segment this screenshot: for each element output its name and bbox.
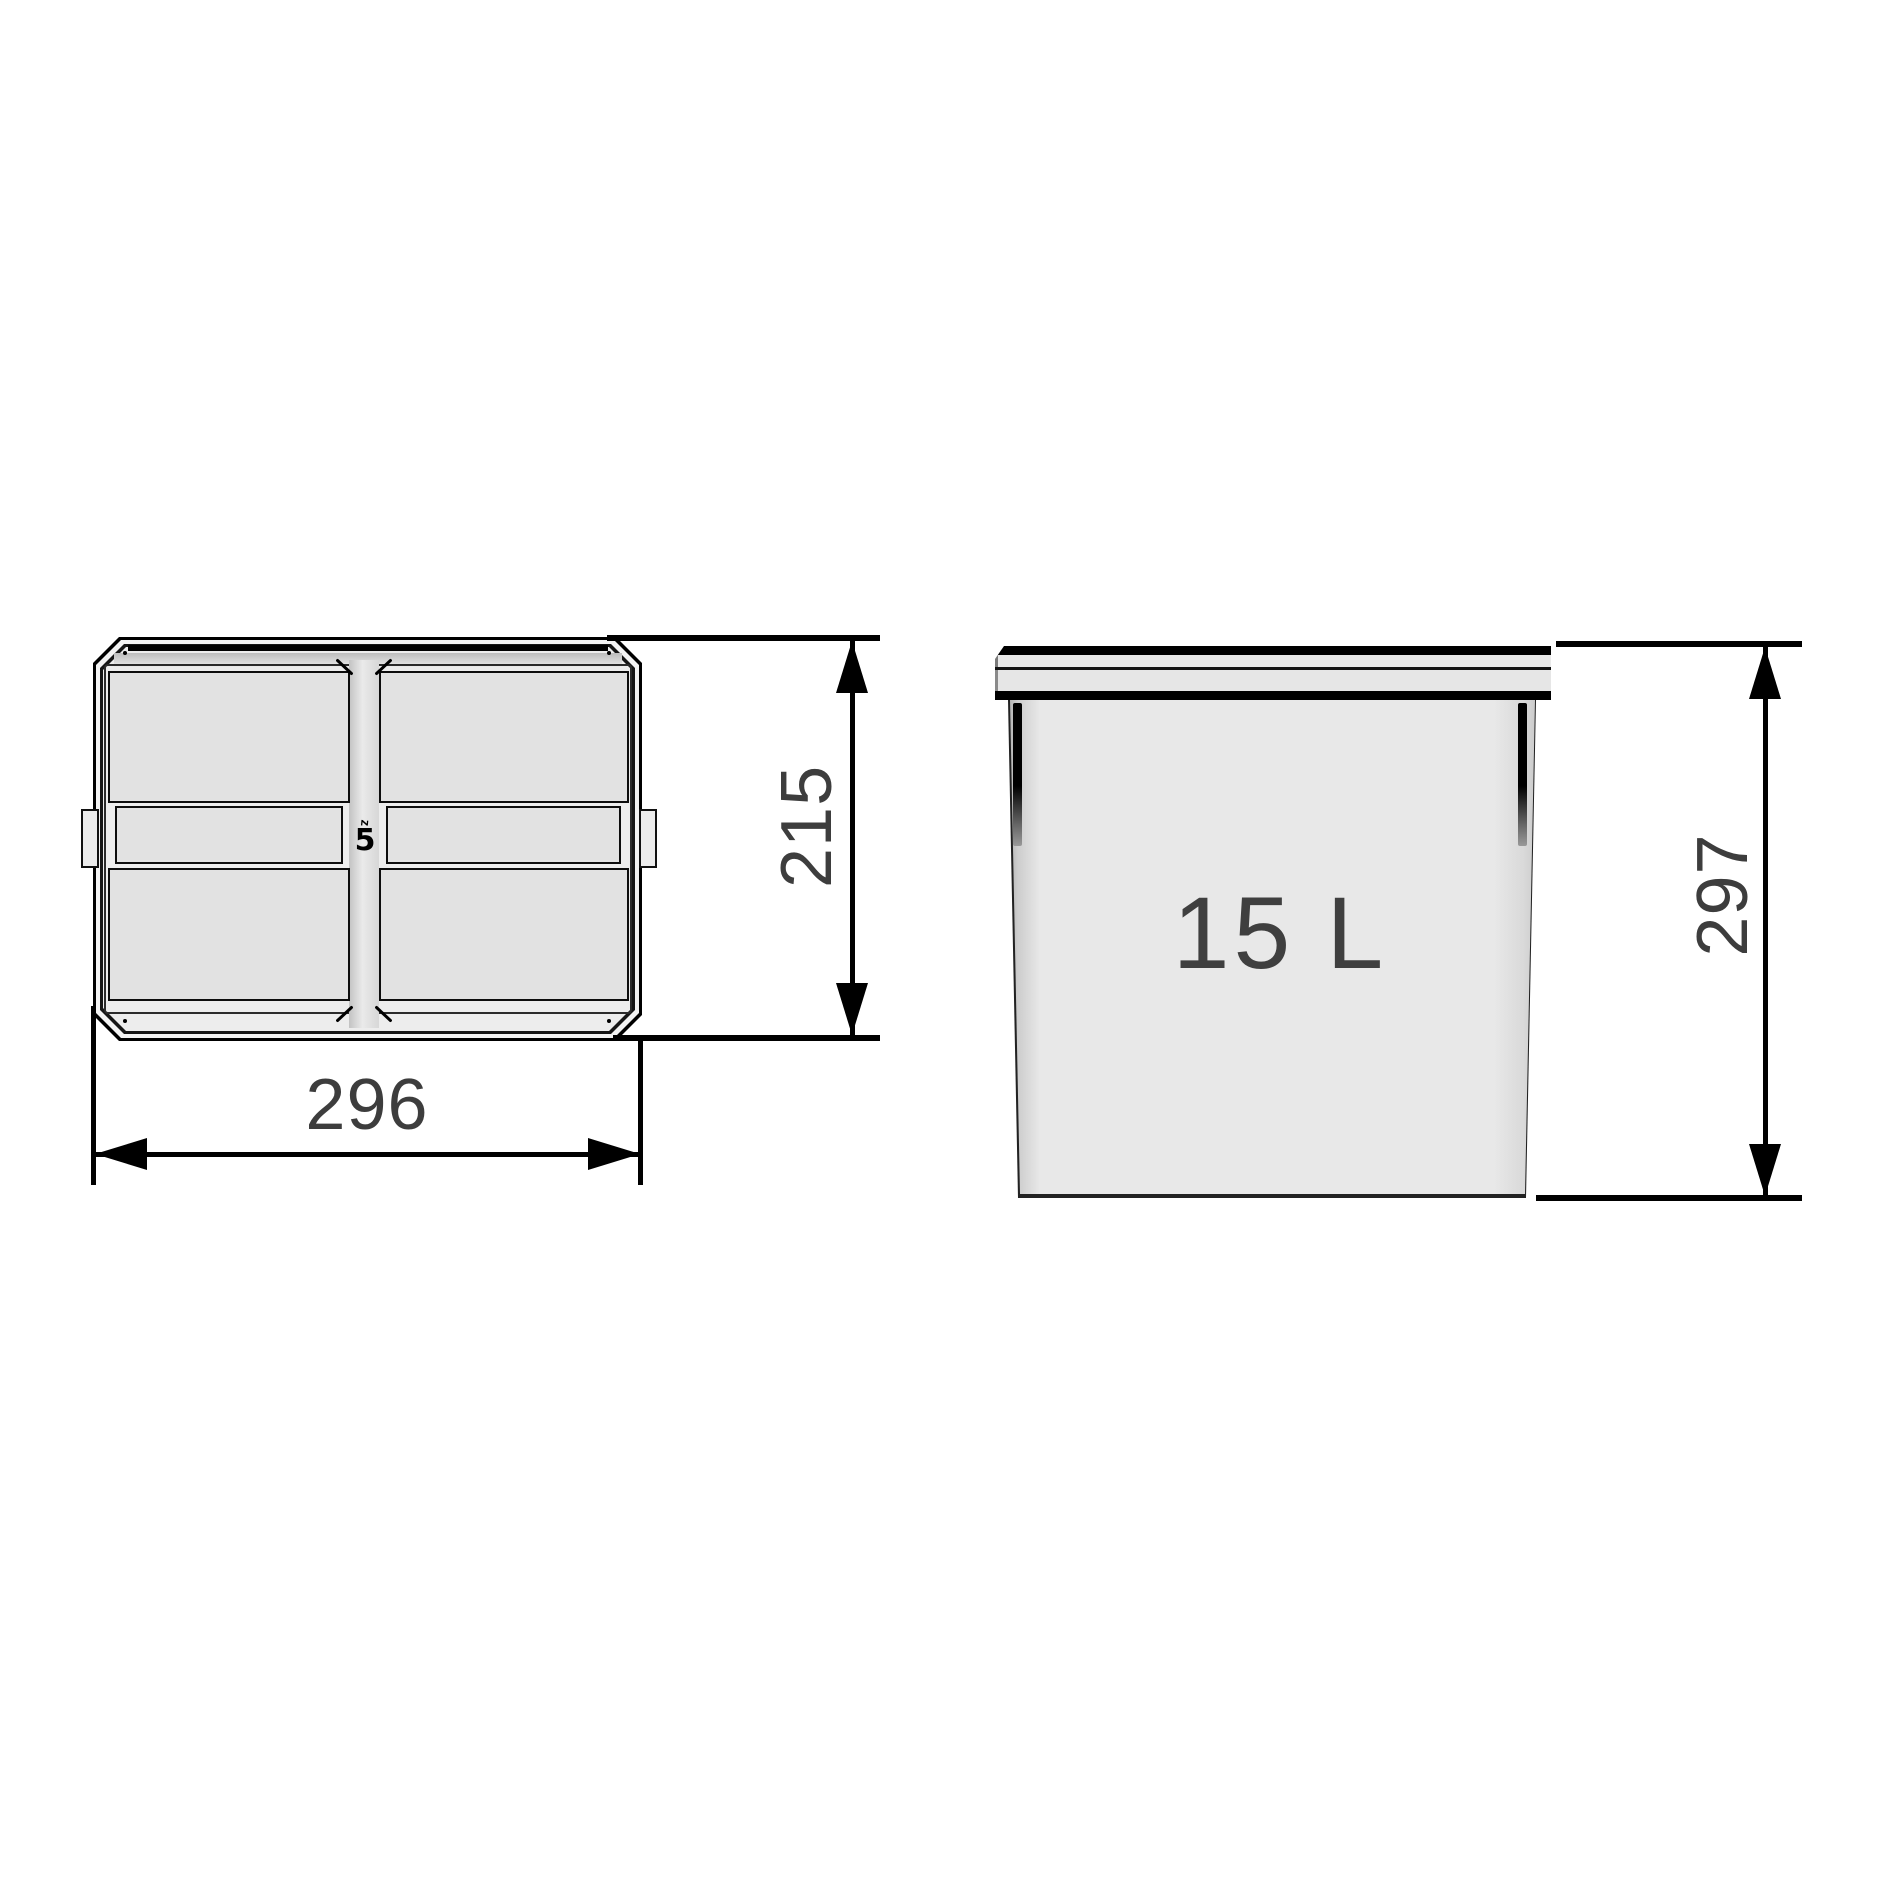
rim-band-upper: [995, 655, 1551, 667]
lid-top-edge: [128, 645, 608, 651]
bin-rim: [995, 646, 1551, 700]
lid-panel-middle-right: [386, 806, 621, 864]
mold-mark-symbol: z: [360, 819, 371, 826]
rim-bottom-edge: [995, 691, 1551, 700]
arrowhead-depth-top-icon: [836, 641, 868, 693]
mold-mark-number: 5: [355, 828, 376, 854]
arrowhead-height-bottom-icon: [1749, 1144, 1781, 1196]
arrowhead-height-top-icon: [1749, 647, 1781, 699]
lid-panel-top-right: [379, 671, 629, 803]
rim-top-edge: [995, 646, 1551, 655]
lid-hinge-tab-right: [639, 809, 657, 868]
lid-panel-top-left: [108, 671, 350, 803]
arrowhead-width-right-icon: [588, 1138, 640, 1170]
rim-band-lower: [995, 670, 1551, 691]
arrowhead-width-left-icon: [95, 1138, 147, 1170]
mold-dot-bottom-right: [607, 1019, 611, 1023]
capacity-label: 15 L: [1108, 873, 1452, 993]
dimension-label-depth: 215: [767, 788, 847, 888]
bin-handle-slot-left: [1013, 703, 1022, 846]
lid-hinge-tab-left: [81, 809, 99, 868]
mold-dot-top-left: [123, 651, 127, 655]
lid-panel-bottom-right: [379, 868, 629, 1001]
arrowhead-depth-bottom-icon: [836, 983, 868, 1035]
dimension-line-width: [93, 1152, 642, 1157]
dimension-label-height: 297: [1683, 815, 1763, 975]
dimension-label-width: 296: [287, 1070, 447, 1140]
dimension-line-height: [1763, 645, 1768, 1198]
dimension-drawing-canvas: z 5 215 296 15 L: [0, 0, 1900, 1900]
lid-panel-bottom-left: [108, 868, 350, 1001]
mold-dot-bottom-left: [123, 1019, 127, 1023]
bin-handle-slot-right: [1518, 703, 1527, 846]
extension-line-depth-bottom: [613, 1035, 880, 1041]
lid-mold-mark: z 5: [351, 808, 379, 864]
lid-panel-middle-left: [115, 806, 343, 864]
dimension-line-depth: [850, 640, 855, 1036]
mold-dot-top-right: [607, 651, 611, 655]
